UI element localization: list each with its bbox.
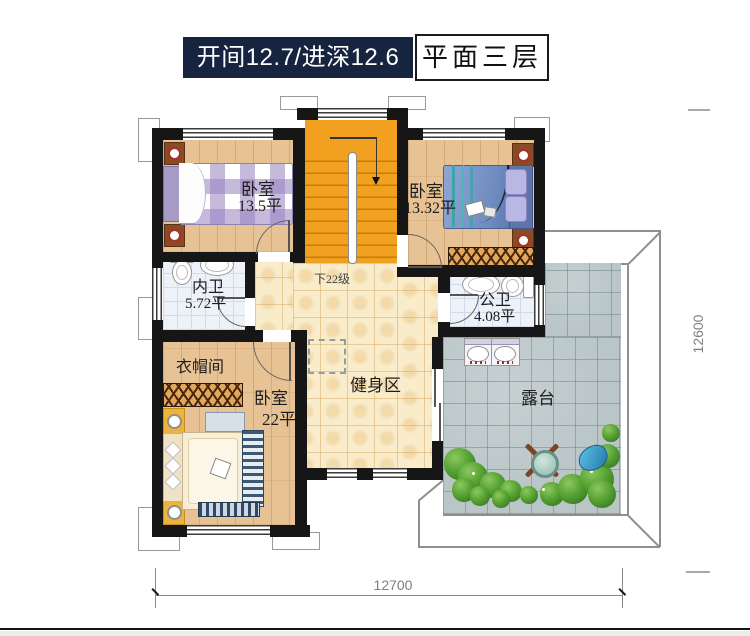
bedroom-topleft-area: 13.5平 [238,199,282,216]
title-floor: 平面三层 [415,34,549,81]
stair-walkline [376,137,378,177]
lamp [168,229,181,242]
crop-mark [686,571,710,573]
bedroom-bottom-area: 22平 [262,411,296,429]
roof-miter [627,514,660,547]
pillow [505,196,527,222]
washing-machine-knobs [470,361,486,364]
roof-outline [418,546,660,548]
bedroom-topright-area: 13.32平 [404,201,456,218]
sliding-door-pane [434,369,436,407]
lamp [167,505,182,520]
bush [492,490,510,508]
washing-machine-panel [465,339,492,345]
pillow [505,169,527,195]
sliding-door-pane [439,403,441,441]
nightstand [512,143,534,167]
shelf [205,412,245,432]
door-leaf [288,220,290,252]
bedroom-bottom-label: 卧室 [254,390,288,408]
roof-inner-line [443,514,629,516]
door-opening [263,330,291,342]
washing-machine [491,338,520,366]
roof-miter [418,479,444,501]
clothes-rack [163,383,243,407]
public-bath-label: 公卫 [479,293,511,310]
flower-dot [472,472,475,475]
hallway-floor [255,262,293,332]
washing-machine-knobs [497,361,513,364]
bed-stripe [470,165,473,227]
flower-dot [542,488,545,491]
nightstand [164,142,185,165]
wall [293,128,305,263]
inner-bath-label: 内卫 [192,280,224,297]
page-divider-band [0,631,750,636]
roof-outline [659,230,661,547]
bench [198,502,260,517]
stair-direction-arrow [372,177,380,185]
wardrobe [448,247,534,267]
bush [588,480,616,508]
bush [470,486,490,506]
washing-machine-panel [492,339,519,345]
wall [245,252,255,342]
roof-outline [545,230,660,232]
roof-outline [418,500,420,547]
window [373,468,407,480]
window [187,525,270,537]
washing-machine-lid [467,346,489,362]
dresser [242,430,264,507]
sink-inner [468,277,494,292]
terrace-floor [545,263,621,337]
dimension-extension [622,568,623,608]
lamp [517,234,530,247]
bush [602,424,620,442]
window [534,285,545,325]
door-opening [245,298,255,326]
wall [438,327,545,337]
window [152,268,163,320]
lamp [167,414,182,429]
wall [295,468,443,480]
window [423,128,505,140]
magazine [483,206,497,218]
cloakroom-label: 衣帽间 [176,360,224,377]
crop-mark [688,109,710,111]
nightstand [163,408,185,434]
door-leaf [289,342,291,380]
toilet-seat [506,279,519,293]
stairs-note: 下22级 [314,273,350,285]
bedroom-topright-label: 卧室 [409,183,443,201]
page-divider [0,628,750,630]
dimension-extension [155,568,156,608]
gym-label: 健身区 [350,377,401,395]
lamp [517,149,530,162]
inner-bath-area: 5.72平 [185,297,226,313]
bedroom-topleft-label: 卧室 [241,181,275,199]
roof-inner-line [627,263,629,515]
dimension-depth: 12600 [691,304,705,364]
public-bath-area: 4.08平 [474,310,515,326]
nightstand [164,224,185,247]
floor-plan-page: 卧室 13.5平 卧室 13.32平 内卫 5.72平 公卫 4.08平 衣帽间… [0,0,750,636]
wall [295,330,307,537]
bed-sheet [179,163,206,223]
stair-walkline [330,137,377,139]
void-opening [308,339,346,374]
window [318,108,387,120]
window [183,128,273,140]
lamp [168,147,181,160]
washing-machine-lid [494,346,516,362]
sliding-door-jamb [432,441,443,447]
door-leaf [408,266,441,268]
washing-machine [464,338,493,366]
window [327,468,357,480]
stair-handrail [348,152,357,264]
title-spec: 开间12.7/进深12.6 [183,37,413,78]
door-opening [397,235,408,267]
dimension-width: 12700 [365,578,421,592]
bed-stripe [462,165,464,227]
toilet-seat [176,265,188,280]
door-opening [438,293,450,322]
dimension-line [155,595,623,596]
door-leaf [450,294,478,296]
terrace-label: 露台 [521,390,555,408]
bush [520,486,538,504]
roof-miter [628,231,661,264]
patio-table [531,450,559,478]
